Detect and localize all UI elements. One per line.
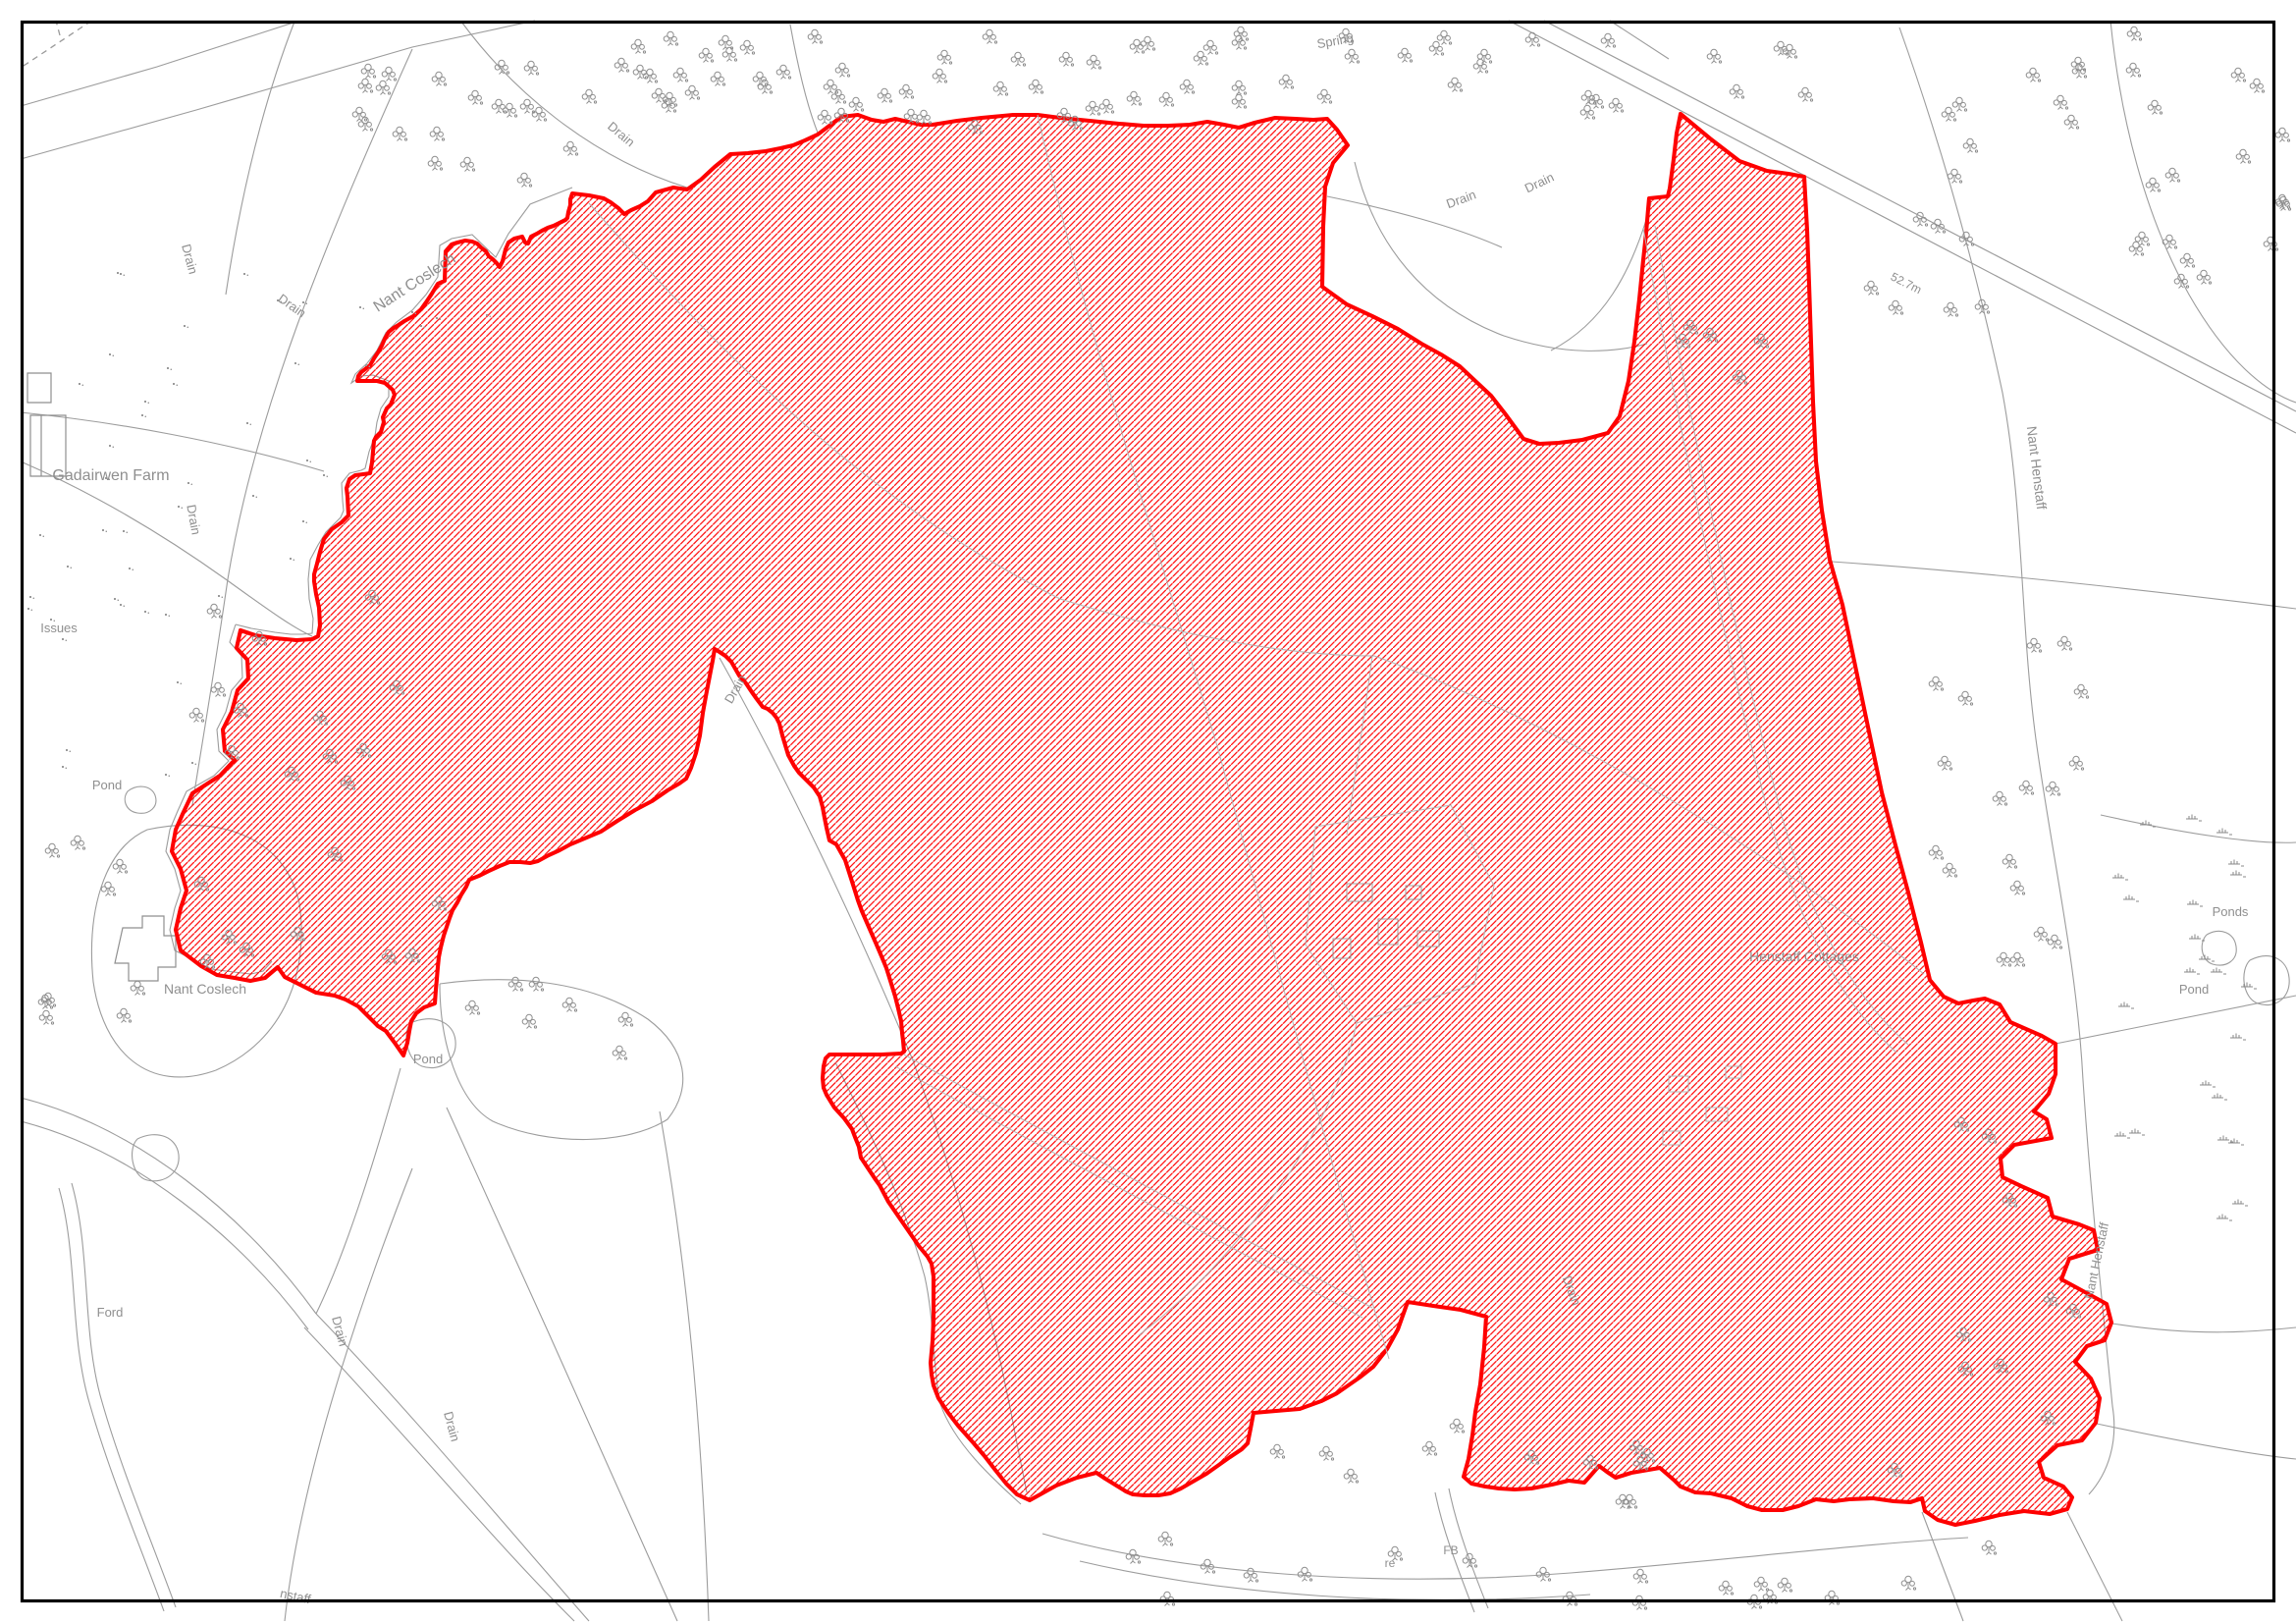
svg-text:Pond: Pond [413, 1052, 443, 1066]
svg-text:Pond: Pond [92, 778, 122, 792]
svg-text:Pond: Pond [2179, 982, 2209, 997]
svg-text:FB: FB [1443, 1543, 1458, 1557]
svg-text:re: re [1385, 1556, 1396, 1570]
svg-text:Ford: Ford [97, 1305, 124, 1320]
svg-text:Gadairwen Farm: Gadairwen Farm [52, 467, 169, 484]
svg-text:Issues: Issues [40, 621, 78, 635]
svg-text:Henstaff Cottages: Henstaff Cottages [1749, 948, 1859, 964]
svg-text:Nant Coslech: Nant Coslech [164, 981, 246, 997]
svg-text:Ponds: Ponds [2213, 904, 2249, 919]
